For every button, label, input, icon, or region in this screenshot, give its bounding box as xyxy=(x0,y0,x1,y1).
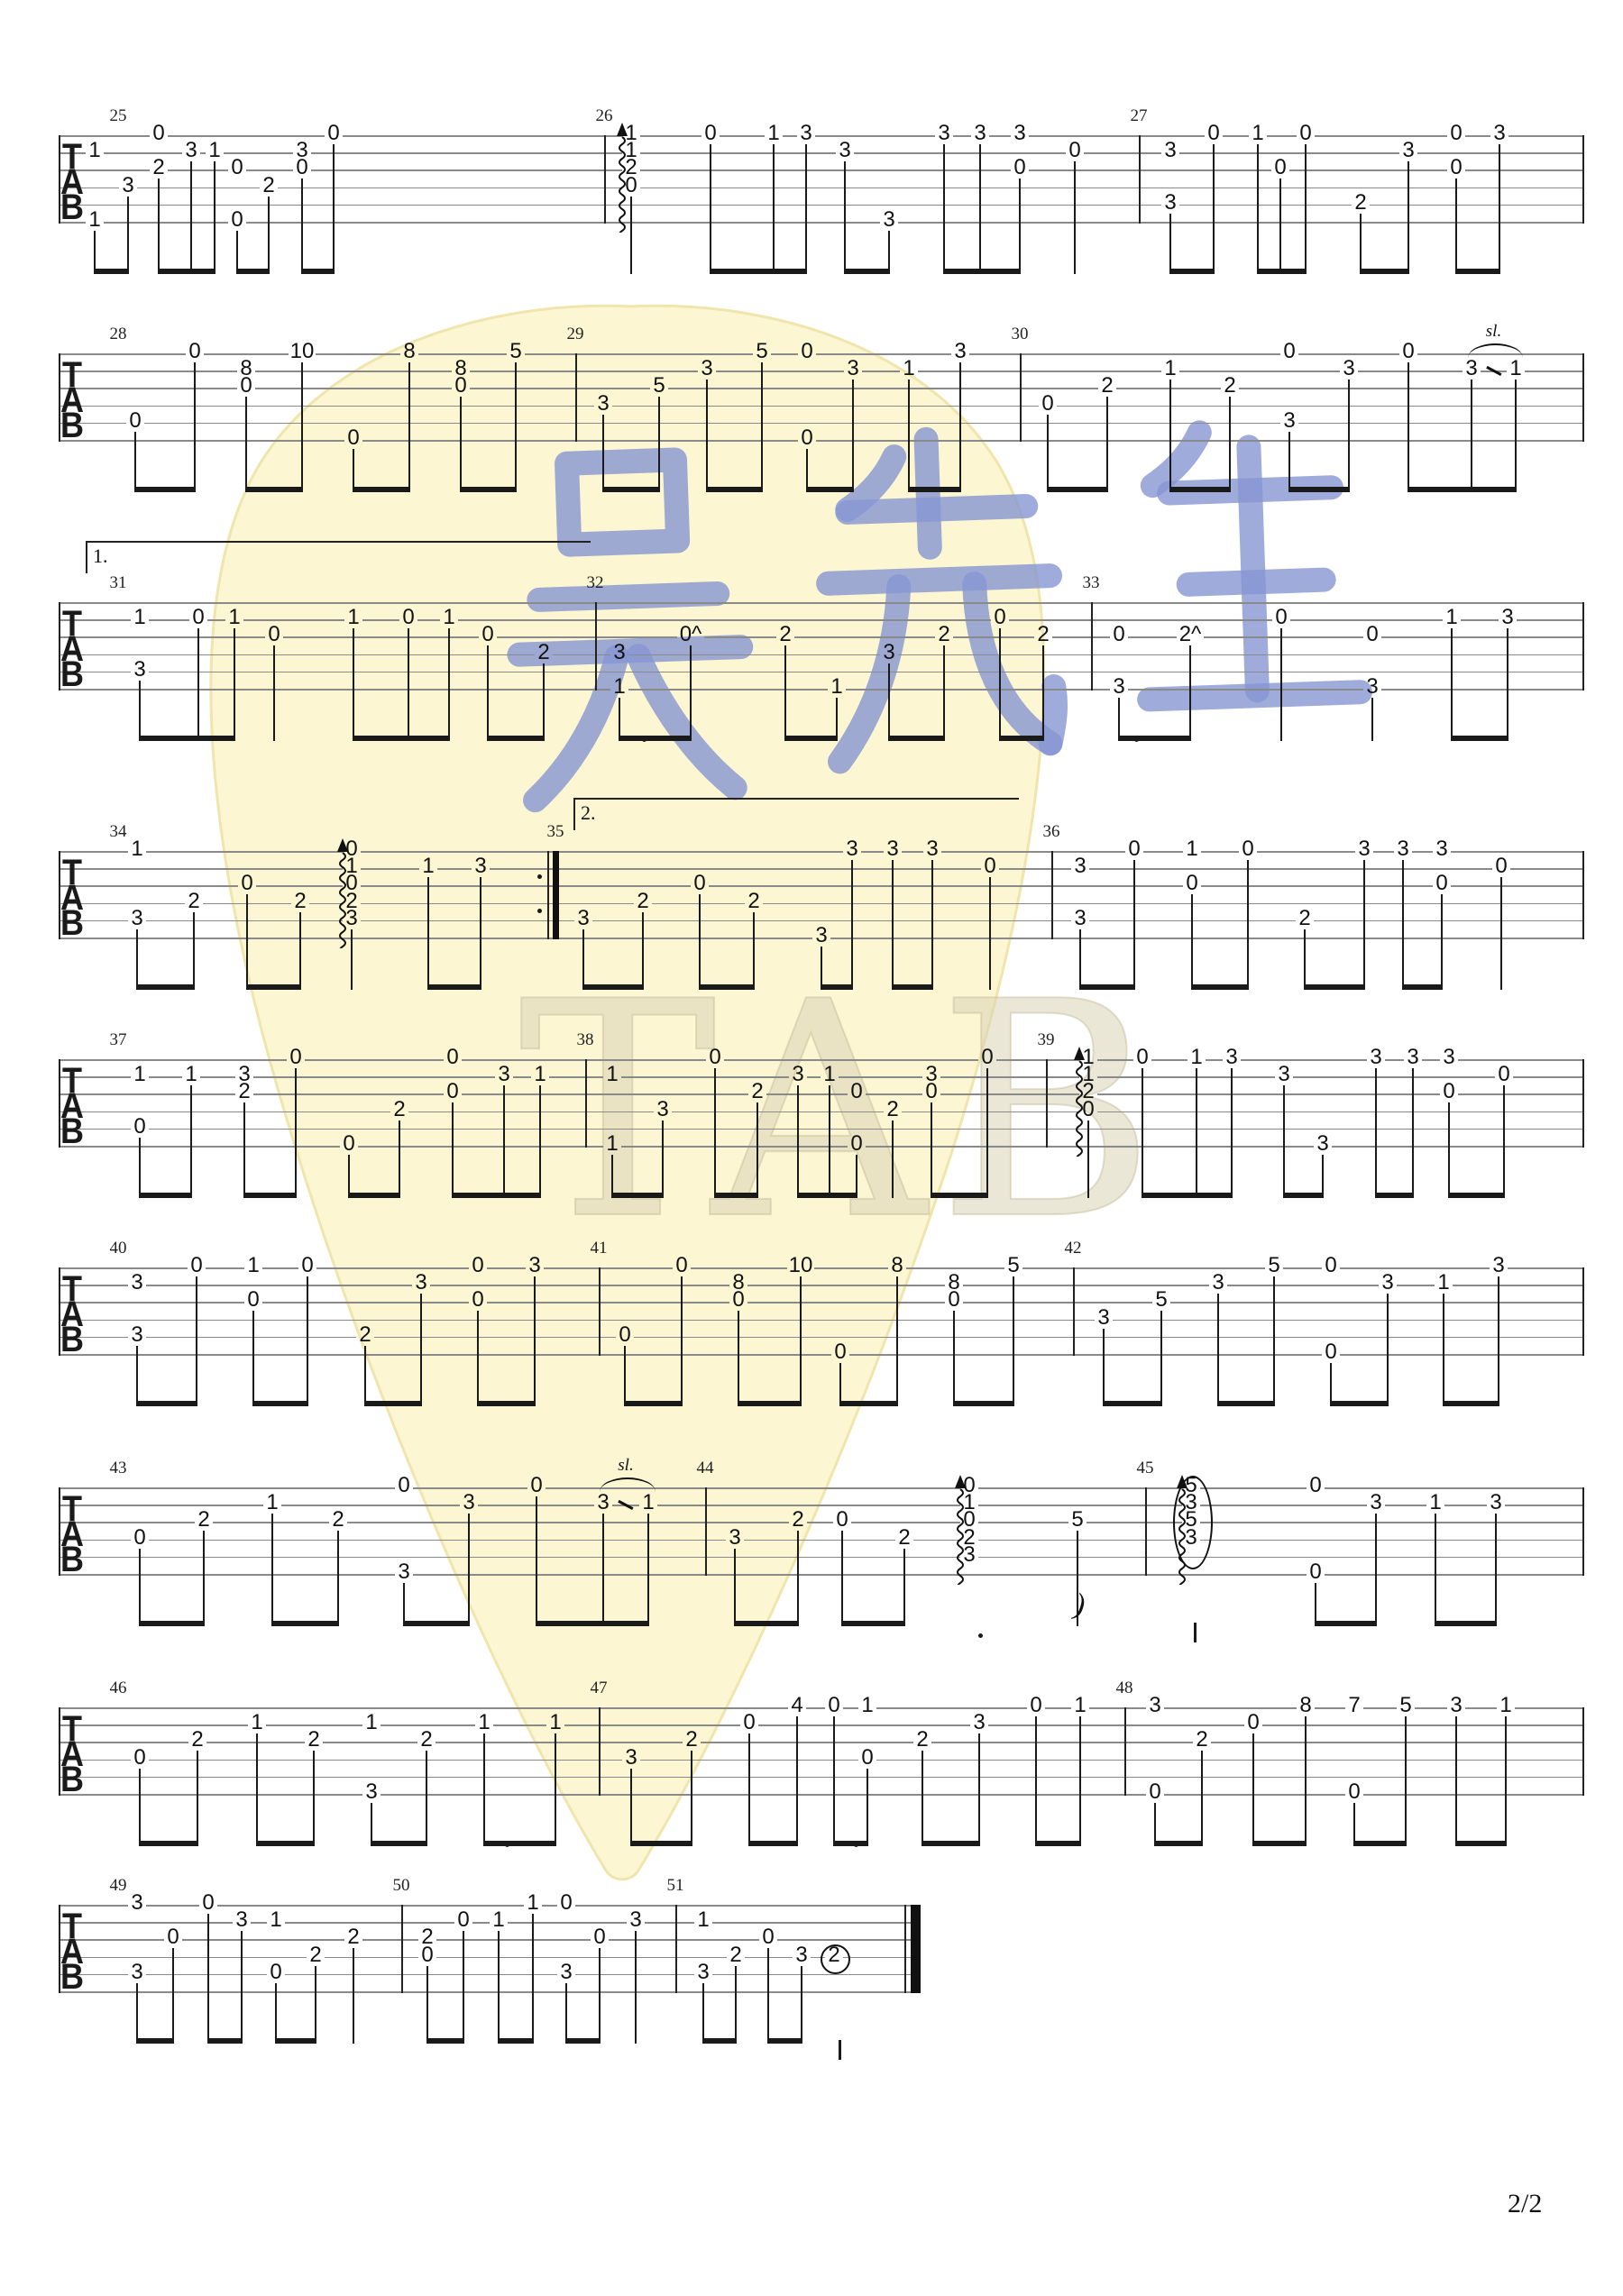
fret-number: 0 xyxy=(1325,1255,1336,1276)
staff-line xyxy=(146,920,343,922)
staff-line xyxy=(59,1320,1095,1322)
staff-line xyxy=(1097,1076,1275,1078)
sheet-page: 吴先生 TAB TAB25113023100230026112001333333… xyxy=(0,0,1623,2296)
fret-number: 0 xyxy=(693,873,705,894)
note-stem xyxy=(1103,1329,1105,1406)
fret-number: 1 xyxy=(270,1909,281,1931)
barline xyxy=(1582,135,1584,224)
fret-number: 3 xyxy=(131,1962,142,1983)
note-stem xyxy=(903,1549,905,1626)
eighth-beam xyxy=(1353,1841,1407,1846)
note-stem xyxy=(1283,1085,1285,1198)
note-stem xyxy=(1047,415,1049,492)
fret-number: 2 xyxy=(1354,192,1366,214)
page-number: 2/2 xyxy=(1508,2189,1542,2219)
staff-line xyxy=(246,222,880,224)
fret-number: 3 xyxy=(1097,1307,1109,1329)
fret-number: 1 xyxy=(88,140,100,161)
staff-line xyxy=(311,169,622,171)
eighth-beam xyxy=(136,1401,197,1406)
fret-number: 3 xyxy=(656,1099,668,1121)
note-stem xyxy=(851,860,853,990)
note-stem xyxy=(888,663,890,741)
staff-line xyxy=(1314,920,1582,922)
staff-line xyxy=(325,1957,418,1959)
eighth-beam xyxy=(1047,487,1108,492)
staff-line xyxy=(1097,1059,1133,1061)
fret-number: 2 xyxy=(1224,375,1235,397)
staff-line xyxy=(839,1076,922,1078)
fret-number: 0 xyxy=(1299,123,1311,144)
clef-letter-b: B xyxy=(60,656,84,692)
fret-number: 3 xyxy=(1443,1047,1454,1068)
eighth-beam xyxy=(243,1193,297,1198)
note-stem xyxy=(602,415,604,492)
staff-line xyxy=(316,1267,469,1269)
fret-number: 0 xyxy=(850,1133,862,1155)
staff-line xyxy=(1517,619,1582,621)
fret-number: 1 xyxy=(903,358,914,380)
fret-number: 3 xyxy=(1358,838,1370,860)
barline xyxy=(1124,1707,1126,1796)
note-stem xyxy=(203,1531,205,1626)
staff-line xyxy=(963,1285,1209,1286)
clef-letter-b: B xyxy=(60,407,84,444)
fret-number: 1 xyxy=(422,855,434,877)
chord-circle-annotation xyxy=(1173,1476,1213,1569)
fret-number: 3 xyxy=(1370,1492,1381,1514)
staff-line xyxy=(1022,1267,1265,1269)
measure-number: 39 xyxy=(1038,1030,1055,1050)
staff-line xyxy=(1239,388,1582,389)
staff-line xyxy=(814,1267,888,1269)
fret-number: 0 xyxy=(948,1289,959,1311)
staff-line xyxy=(243,619,344,621)
staff-line xyxy=(1453,1285,1582,1286)
fret-number: 1 xyxy=(1437,1272,1449,1294)
note-stem xyxy=(353,1948,354,2044)
fret-number: 8 xyxy=(403,341,415,362)
staff-line xyxy=(362,619,399,621)
eighth-beam xyxy=(1191,984,1249,990)
staff-line xyxy=(709,885,1183,887)
fret-number: 0 xyxy=(343,1133,354,1155)
fret-number: 7 xyxy=(1348,1695,1360,1716)
staff-line xyxy=(861,851,884,853)
fret-number: 5 xyxy=(509,341,521,362)
note-stem xyxy=(979,144,981,274)
staff-line xyxy=(843,1707,858,1709)
barline xyxy=(1582,1707,1584,1796)
final-thin-barline xyxy=(904,1905,906,1993)
final-thick-barline xyxy=(911,1905,921,1993)
fret-number: 1 xyxy=(443,607,454,628)
eighth-beam xyxy=(821,984,853,990)
staff-line xyxy=(59,370,237,372)
eighth-beam xyxy=(139,736,235,741)
measure-number: 37 xyxy=(110,1030,127,1050)
note-stem xyxy=(756,1102,758,1198)
note-stem xyxy=(193,912,195,990)
fret-number: 1 xyxy=(133,607,145,628)
eighth-beam xyxy=(943,269,1021,274)
fret-number: 0 xyxy=(850,1081,862,1102)
eighth-beam xyxy=(498,2038,534,2044)
fret-number: 0 xyxy=(1113,624,1124,645)
note-stem xyxy=(364,1346,366,1406)
note-stem xyxy=(448,628,450,741)
fret-number: 0 xyxy=(457,1909,469,1931)
staff-line xyxy=(525,353,753,355)
tab-score: TAB2511302310023002611200133333300273301… xyxy=(0,0,1623,2296)
note-stem xyxy=(908,380,910,492)
fret-number: 0 xyxy=(472,1289,483,1311)
eighth-beam xyxy=(1375,1193,1414,1198)
note-stem xyxy=(134,432,136,492)
staff-line xyxy=(1206,1059,1223,1061)
staff-line xyxy=(672,1111,884,1113)
staff-line xyxy=(544,1267,673,1269)
eighth-beam xyxy=(1079,984,1135,990)
fret-number: 1 xyxy=(697,1909,709,1931)
fret-number: 1 xyxy=(365,1712,377,1733)
staff-line xyxy=(1241,1059,1367,1061)
note-stem xyxy=(1305,144,1307,274)
fret-number: 2 xyxy=(537,642,549,663)
fret-number: 0 xyxy=(593,1926,605,1948)
staff-line xyxy=(1510,868,1582,870)
fret-number: 2 xyxy=(359,1324,371,1346)
note-stem xyxy=(989,877,991,990)
staff-line xyxy=(266,1724,362,1726)
eighth-beam xyxy=(487,736,545,741)
note-stem xyxy=(931,1102,932,1198)
note-stem xyxy=(136,1983,138,2044)
barline xyxy=(1020,353,1022,442)
staff-line xyxy=(1087,1522,1182,1523)
note-stem xyxy=(1451,628,1453,741)
note-stem xyxy=(136,929,138,990)
note-stem xyxy=(273,645,275,741)
fret-number: 2 xyxy=(1196,1729,1207,1751)
staff-line xyxy=(497,636,677,638)
staff-line xyxy=(766,1093,848,1095)
fret-number: 2 xyxy=(898,1527,910,1549)
eighth-beam xyxy=(371,1841,427,1846)
staff-line xyxy=(771,353,798,355)
fret-number: 0 xyxy=(301,1255,313,1276)
fret-number: 3 xyxy=(528,1255,540,1276)
eighth-beam xyxy=(536,1621,649,1626)
note-stem xyxy=(190,161,192,274)
fret-number: 1 xyxy=(549,1712,561,1733)
staff-line xyxy=(645,1922,694,1924)
note-stem xyxy=(127,197,129,274)
staff-line xyxy=(747,1285,945,1286)
staff-line xyxy=(436,1742,683,1743)
fret-number: 10 xyxy=(789,1255,813,1276)
note-stem xyxy=(1042,645,1044,741)
fret-number: 3 xyxy=(1493,123,1505,144)
staff-line xyxy=(59,1574,395,1576)
fret-number: 3 xyxy=(973,1712,985,1733)
fret-number: 3 xyxy=(597,1492,609,1514)
staff-line xyxy=(362,1939,418,1941)
fret-number: 0 xyxy=(1274,157,1286,178)
measure-number: 27 xyxy=(1131,106,1148,126)
fret-number: 0 xyxy=(421,1944,433,1966)
fret-number: 0 xyxy=(133,1527,145,1549)
staff-line xyxy=(1283,1267,1322,1269)
staff-line xyxy=(59,1487,395,1489)
fret-number: 3 xyxy=(365,1781,377,1803)
staff-line xyxy=(361,851,843,853)
eighth-beam xyxy=(1288,487,1350,492)
clef-letter-b: B xyxy=(60,1959,84,1995)
fret-number: 0 xyxy=(743,1712,755,1733)
fret-number: 0 xyxy=(732,1289,744,1311)
staff-line xyxy=(1262,1724,1582,1726)
staff-line xyxy=(996,1059,1079,1061)
note-stem xyxy=(986,1068,988,1198)
note-stem xyxy=(582,929,584,990)
fret-number: 2 xyxy=(309,1944,321,1966)
staff-line xyxy=(1267,135,1297,137)
staff-line xyxy=(1412,851,1433,853)
volta-label: 2. xyxy=(581,801,596,825)
note-stem xyxy=(1371,698,1373,741)
note-stem xyxy=(784,645,786,741)
note-stem xyxy=(1499,144,1500,274)
fret-number: 3 xyxy=(463,1492,474,1514)
note-stem xyxy=(532,1914,534,2044)
note-stem xyxy=(691,1751,692,1846)
barline xyxy=(595,602,597,691)
staff-line xyxy=(763,903,1582,905)
staff-line xyxy=(1097,1111,1582,1113)
fret-number: 0 xyxy=(1041,393,1053,415)
eighth-beam xyxy=(844,269,890,274)
staff-line xyxy=(144,423,1280,425)
staff-line xyxy=(262,1302,469,1304)
eighth-beam xyxy=(1169,487,1231,492)
eighth-beam xyxy=(619,736,692,741)
fret-number: 0 xyxy=(1207,123,1219,144)
note-stem xyxy=(275,1983,277,2044)
staff-line xyxy=(59,1724,248,1726)
note-stem xyxy=(460,397,462,492)
staff-line xyxy=(146,1285,412,1286)
measure-number: 28 xyxy=(110,325,127,344)
note-stem xyxy=(197,628,199,741)
fret-number: 3 xyxy=(1316,1133,1328,1155)
note-stem xyxy=(452,1102,454,1198)
eighth-beam xyxy=(1103,1401,1162,1406)
note-stem xyxy=(301,362,303,492)
staff-line xyxy=(59,1146,340,1148)
eighth-beam xyxy=(953,1401,1014,1406)
note-stem xyxy=(487,645,489,741)
fret-number: 1 xyxy=(830,676,842,698)
note-stem xyxy=(1160,1311,1162,1406)
eighth-beam xyxy=(460,487,517,492)
note-stem xyxy=(841,1531,843,1626)
fret-number: 3 xyxy=(974,123,986,144)
clef-letter-b: B xyxy=(60,189,84,225)
tie-curve: ) xyxy=(1069,1587,1090,1624)
fret-number: 1 xyxy=(1164,358,1176,380)
staff-line xyxy=(668,388,1098,389)
staff-line xyxy=(1451,851,1582,853)
eighth-beam xyxy=(714,1193,758,1198)
eighth-beam xyxy=(1435,1621,1497,1626)
measure-number: 50 xyxy=(393,1876,410,1896)
fret-number: 1 xyxy=(208,140,220,161)
note-stem xyxy=(1503,1085,1505,1198)
note-stem xyxy=(139,1549,141,1626)
fret-number: 0 xyxy=(296,157,307,178)
barline xyxy=(575,353,577,442)
fret-number: 0^ xyxy=(680,624,702,645)
rhythm-dot xyxy=(642,737,646,742)
note-stem xyxy=(1231,1068,1233,1198)
note-stem xyxy=(1375,1068,1377,1198)
staff-line xyxy=(1458,1059,1582,1061)
staff-line xyxy=(182,1939,344,1941)
staff-line xyxy=(866,1146,1314,1148)
staff-line xyxy=(953,636,1034,638)
eighth-beam xyxy=(136,984,195,990)
staff-line xyxy=(612,406,1039,407)
fret-number: 1 xyxy=(606,1064,618,1085)
fret-number: 4 xyxy=(791,1695,802,1716)
staff-line xyxy=(323,1742,417,1743)
note-stem xyxy=(805,144,807,274)
eighth-beam xyxy=(236,269,270,274)
note-stem xyxy=(234,628,235,741)
slide-arc xyxy=(1468,343,1523,358)
note-stem xyxy=(761,362,763,492)
staff-line xyxy=(278,188,622,189)
measure-number: 48 xyxy=(1116,1679,1133,1698)
eighth-beam xyxy=(139,1621,205,1626)
note-stem xyxy=(503,1085,505,1198)
staff-line xyxy=(575,1905,921,1907)
staff-line xyxy=(256,885,343,887)
staff-line xyxy=(255,370,452,372)
staff-line xyxy=(1385,1505,1426,1506)
staff-line xyxy=(794,636,935,638)
note-stem xyxy=(1402,860,1404,990)
note-stem xyxy=(333,144,335,274)
fret-number: 2 xyxy=(191,1729,203,1751)
fret-number: 1 xyxy=(266,1492,278,1514)
staff-line xyxy=(59,1991,921,1993)
fret-number: 0 xyxy=(1149,1781,1160,1803)
note-stem xyxy=(821,947,822,990)
note-stem xyxy=(498,1931,500,2044)
note-stem xyxy=(480,877,481,990)
note-stem xyxy=(1191,894,1193,990)
fret-number: 1 xyxy=(492,1909,504,1931)
eighth-beam xyxy=(1142,1193,1233,1198)
note-stem xyxy=(734,1549,736,1626)
note-stem xyxy=(1408,362,1409,492)
staff-line xyxy=(59,406,594,407)
fret-number: 3 xyxy=(597,393,609,415)
staff-line xyxy=(462,1059,706,1061)
staff-line xyxy=(487,1302,729,1304)
staff-line xyxy=(418,353,507,355)
staff-line xyxy=(59,1557,960,1559)
staff-line xyxy=(490,868,981,870)
clef-letter-b: B xyxy=(60,1541,84,1578)
staff-line xyxy=(1045,1707,1071,1709)
staff-line xyxy=(343,135,622,137)
staff-line xyxy=(640,135,701,137)
measure-number: 47 xyxy=(591,1679,608,1698)
fret-number: 1 xyxy=(88,209,100,231)
measure-number: 25 xyxy=(110,106,127,126)
note-stem xyxy=(252,1311,254,1406)
staff-line xyxy=(104,222,228,224)
staff-line xyxy=(1325,1574,1582,1576)
fret-number: 8 xyxy=(1299,1695,1311,1716)
clef-letter-b: B xyxy=(60,905,84,941)
staff-line xyxy=(1084,152,1161,154)
note-stem xyxy=(931,860,933,990)
eighth-beam xyxy=(706,487,763,492)
eighth-beam xyxy=(1451,736,1508,741)
note-stem xyxy=(753,912,755,990)
note-stem xyxy=(307,1276,308,1406)
staff-line xyxy=(1143,851,1183,853)
note-stem xyxy=(797,1085,799,1198)
eighth-beam xyxy=(252,1401,308,1406)
eighth-beam xyxy=(1257,269,1307,274)
note-stem xyxy=(888,231,890,274)
staff-line xyxy=(862,370,900,372)
tick-mark xyxy=(1194,1623,1197,1642)
fret-number: 0 xyxy=(709,1047,720,1068)
fret-number: 10 xyxy=(290,341,315,362)
measure-number: 38 xyxy=(577,1030,594,1050)
staff-line xyxy=(1164,1707,1297,1709)
staff-line xyxy=(146,1974,267,1976)
note-stem xyxy=(1455,178,1457,274)
note-stem xyxy=(1387,1294,1389,1406)
note-stem xyxy=(1189,645,1191,741)
note-stem xyxy=(1471,380,1472,492)
staff-line xyxy=(1298,423,1582,425)
note-stem xyxy=(1443,1294,1444,1406)
staff-line xyxy=(137,188,260,189)
fret-number: 0 xyxy=(1348,1781,1360,1803)
staff-line xyxy=(149,1076,182,1078)
note-stem xyxy=(896,1276,898,1406)
strum-arrow-icon xyxy=(1072,1047,1087,1157)
staff-line xyxy=(168,135,325,137)
eighth-beam xyxy=(348,1193,400,1198)
staff-line xyxy=(1358,370,1463,372)
eighth-beam xyxy=(611,1193,664,1198)
staff-line xyxy=(953,135,971,137)
staff-line xyxy=(149,672,1582,673)
clef-letter-b: B xyxy=(60,1322,84,1358)
staff-line xyxy=(1444,1505,1487,1506)
fret-number: 3 xyxy=(1164,140,1176,161)
staff-line xyxy=(830,938,1582,939)
